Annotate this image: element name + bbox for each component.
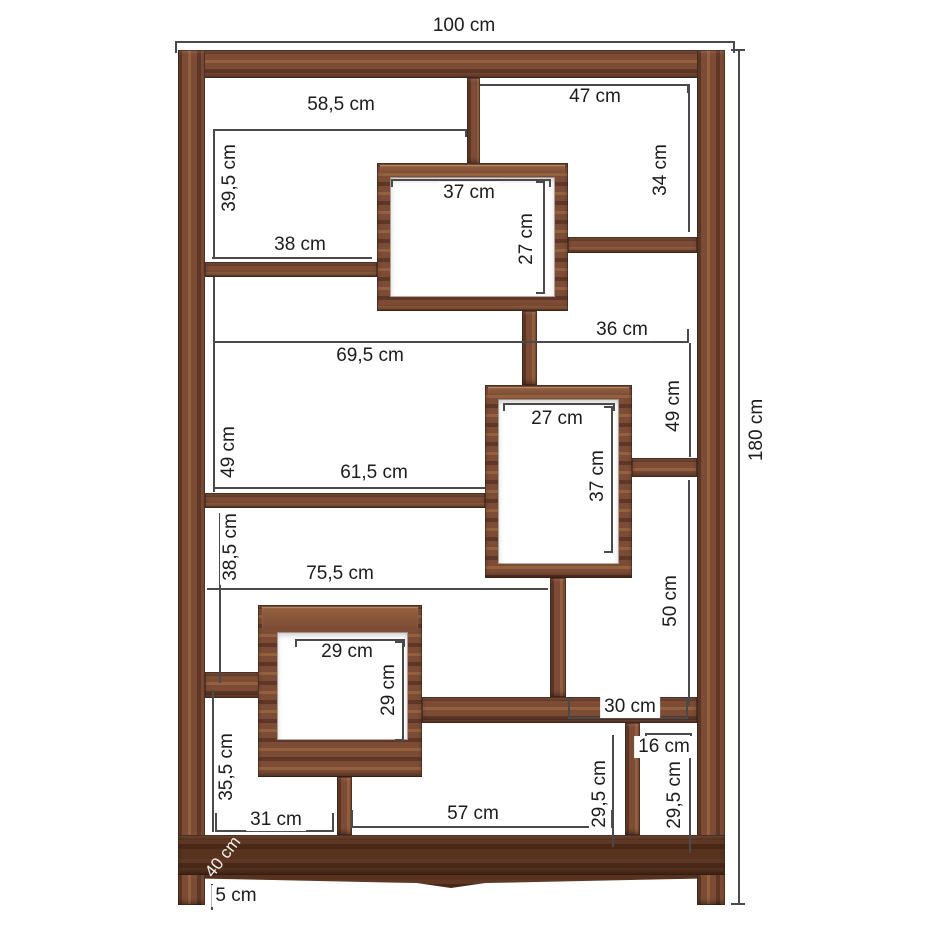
dim-tick — [687, 329, 689, 342]
dim-line-50 — [688, 480, 690, 706]
dim-tick — [295, 639, 297, 647]
shelf-upper-right — [568, 237, 697, 253]
dim-label-27-box2: 27 cm — [527, 408, 587, 430]
dim-label-total-height: 180 cm — [746, 395, 768, 465]
top-divider — [467, 78, 480, 164]
top-beam — [178, 50, 725, 78]
dim-tick — [613, 403, 615, 411]
dim-label-39-5: 39,5 cm — [219, 140, 241, 216]
right-post — [697, 50, 725, 905]
dim-line-75-5 — [207, 588, 548, 590]
dim-line-61-5 — [213, 487, 485, 489]
dim-line-39-5 — [213, 129, 215, 258]
dim-line-27-box2 — [503, 403, 615, 405]
dim-tick — [395, 641, 403, 643]
dim-label-37-box1: 37 cm — [439, 182, 499, 204]
dim-label-29-5-left: 29,5 cm — [589, 756, 611, 832]
dim-tick — [686, 698, 688, 718]
dim-tick — [731, 903, 745, 905]
dim-tick — [351, 810, 353, 826]
dim-label-49-left: 49 cm — [218, 422, 240, 482]
stem-box3-base — [337, 777, 352, 835]
left-post — [178, 50, 205, 905]
dim-line-57 — [351, 826, 612, 828]
dim-tick — [536, 292, 544, 294]
dim-line-49-right — [689, 343, 691, 457]
dim-tick — [391, 179, 393, 187]
dim-tick — [731, 49, 745, 51]
dim-line-34 — [688, 84, 690, 232]
dim-label-30: 30 cm — [600, 696, 660, 718]
dim-label-29-5-right: 29,5 cm — [664, 757, 686, 833]
dim-tick — [549, 179, 551, 187]
dim-label-36: 36 cm — [592, 319, 652, 341]
dim-label-38: 38 cm — [270, 234, 330, 256]
dim-line-16 — [645, 733, 692, 735]
dim-tick — [604, 406, 612, 408]
dim-line-29-box3-h — [402, 641, 404, 741]
dim-label-plinth-5: 5 cm — [211, 885, 260, 907]
dim-label-34: 34 cm — [650, 140, 672, 200]
stem-box1-box2 — [522, 311, 537, 385]
dim-label-16: 16 cm — [634, 736, 694, 758]
floating-box-3-top-face — [262, 607, 418, 629]
dim-line-37-box2 — [611, 406, 613, 553]
shelf-dimension-diagram: 100 cm 180 cm 58,5 cm 47 cm 39,5 cm 34 c… — [0, 0, 940, 940]
floating-box-2-top-face — [488, 387, 629, 395]
dim-label-27-box1: 27 cm — [516, 209, 538, 269]
dim-tick — [568, 698, 570, 718]
dim-label-50: 50 cm — [660, 571, 682, 631]
dim-line-180 — [738, 50, 740, 905]
shelf-mid-left — [205, 493, 485, 508]
dim-line-38 — [212, 257, 372, 259]
base-board — [178, 835, 725, 875]
dim-tick — [465, 129, 467, 137]
dim-line-37-box1 — [391, 179, 551, 181]
dim-line-100 — [176, 41, 734, 43]
shelf-mid-right — [632, 458, 697, 477]
shelf-upper-left — [205, 262, 377, 277]
dim-label-29-box3-w: 29 cm — [317, 641, 377, 663]
dim-label-total-width: 100 cm — [429, 15, 499, 37]
dim-tick — [536, 181, 544, 183]
dim-line-49-left — [213, 277, 215, 492]
dim-label-49-right: 49 cm — [663, 376, 685, 436]
dim-label-47: 47 cm — [565, 86, 625, 108]
dim-tick — [733, 41, 735, 53]
dim-label-75-5: 75,5 cm — [302, 563, 378, 585]
dim-label-37-box2: 37 cm — [587, 446, 609, 506]
dim-tick — [332, 813, 334, 831]
dim-tick — [215, 813, 217, 831]
dim-tick — [503, 403, 505, 411]
stem-box2-shelf — [550, 578, 566, 697]
dim-label-29-box3-h: 29 cm — [378, 660, 400, 720]
dim-label-58-5: 58,5 cm — [303, 94, 379, 116]
base-apron — [205, 875, 697, 888]
floating-box-1-top-face — [380, 165, 565, 173]
dim-line-29-5-left — [612, 735, 614, 847]
dim-tick — [395, 739, 403, 741]
dim-label-31: 31 cm — [246, 809, 306, 831]
dim-label-35-5: 35,5 cm — [216, 729, 238, 805]
dim-line-27-box1 — [543, 181, 545, 294]
dim-tick — [175, 41, 177, 53]
dim-line-35-5 — [212, 690, 214, 832]
dim-label-69-5: 69,5 cm — [332, 345, 408, 367]
dim-label-38-5: 38,5 cm — [220, 509, 242, 585]
dim-line-58-5 — [213, 129, 467, 131]
dim-tick — [604, 551, 612, 553]
dim-line-69-5-36 — [213, 341, 689, 343]
dim-label-57: 57 cm — [443, 803, 503, 825]
dim-label-61-5: 61,5 cm — [336, 462, 412, 484]
